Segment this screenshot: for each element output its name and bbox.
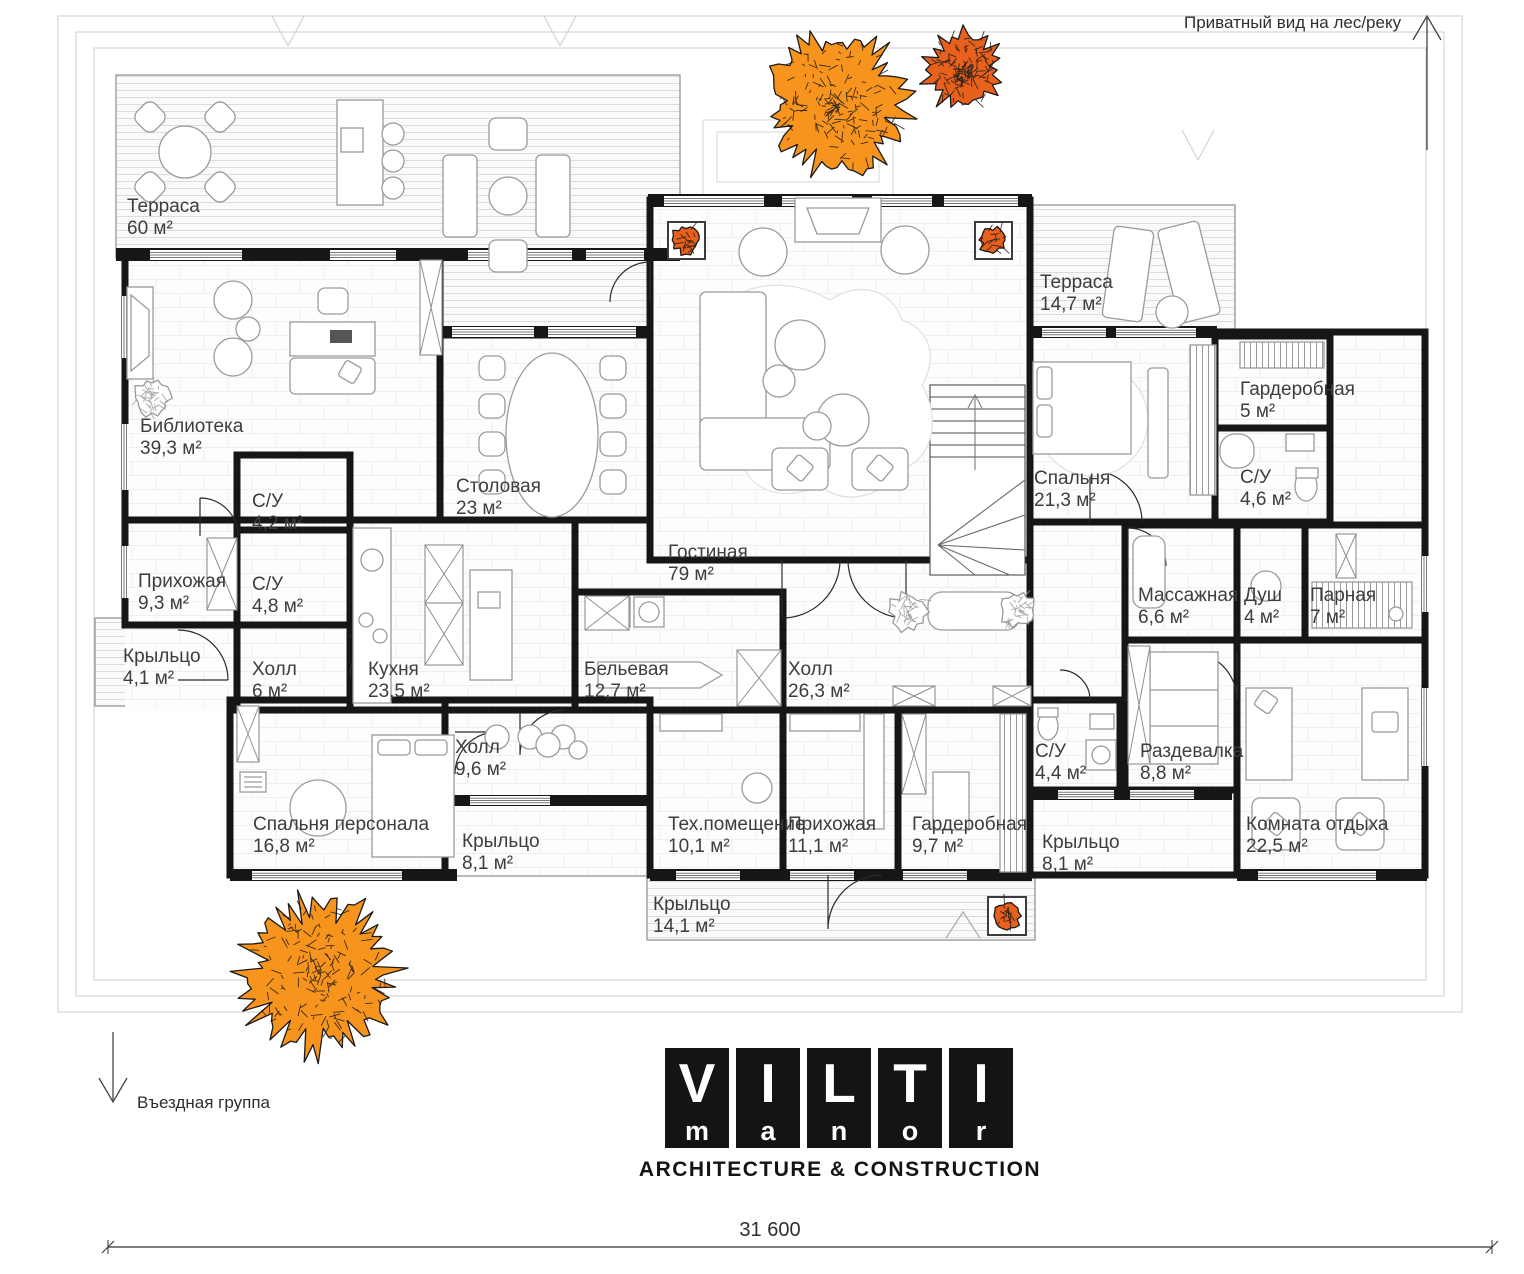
- logo-tile: I r: [949, 1048, 1013, 1148]
- svg-text:Крыльцо: Крыльцо: [1042, 832, 1120, 853]
- svg-text:4,6 м²: 4,6 м²: [1240, 489, 1291, 510]
- svg-text:8,1 м²: 8,1 м²: [462, 853, 513, 874]
- svg-text:V: V: [679, 1052, 716, 1114]
- svg-text:4,4 м²: 4,4 м²: [1035, 763, 1086, 784]
- svg-text:Спальня персонала: Спальня персонала: [253, 814, 429, 835]
- logo: V m I a L n T o I r ARCHITECTURE & CONST…: [639, 1048, 1041, 1181]
- svg-text:11,1 м²: 11,1 м²: [788, 836, 848, 857]
- svg-text:Парная: Парная: [1310, 585, 1376, 606]
- annotation-private-view: Приватный вид на лес/реку: [1184, 13, 1441, 150]
- svg-text:Кухня: Кухня: [368, 659, 419, 680]
- svg-text:7 м²: 7 м²: [1310, 607, 1345, 628]
- logo-tile: I a: [736, 1048, 800, 1148]
- svg-text:a: a: [760, 1116, 776, 1146]
- svg-text:Приватный вид на лес/реку: Приватный вид на лес/реку: [1184, 13, 1402, 32]
- svg-text:Терраса: Терраса: [127, 196, 200, 217]
- svg-text:Гардеробная: Гардеробная: [912, 814, 1027, 835]
- room-label-shower: Душ4 м²: [1244, 585, 1282, 628]
- svg-text:Крыльцо: Крыльцо: [653, 894, 731, 915]
- svg-text:4,2 м²: 4,2 м²: [252, 513, 303, 534]
- tree-icon: [770, 31, 917, 178]
- svg-text:4,1 м²: 4,1 м²: [123, 668, 174, 689]
- svg-text:6,6 м²: 6,6 м²: [1138, 607, 1189, 628]
- svg-text:Въездная группа: Въездная группа: [137, 1093, 271, 1112]
- svg-text:8,8 м²: 8,8 м²: [1140, 763, 1191, 784]
- svg-text:39,3 м²: 39,3 м²: [140, 438, 202, 459]
- svg-text:С/У: С/У: [252, 574, 284, 595]
- dimension-value: 31 600: [739, 1219, 800, 1241]
- svg-text:Холл: Холл: [788, 659, 833, 680]
- svg-text:Столовая: Столовая: [456, 476, 541, 497]
- svg-text:Тех.помещение: Тех.помещение: [668, 814, 806, 835]
- svg-text:Комната отдыха: Комната отдыха: [1246, 814, 1389, 835]
- svg-text:С/У: С/У: [1240, 467, 1272, 488]
- floor-plan-page: Терраса60 м² Библиотека39,3 м² Прихожая9…: [0, 0, 1524, 1274]
- svg-text:m: m: [685, 1116, 709, 1146]
- svg-text:Гостиная: Гостиная: [668, 542, 748, 563]
- svg-text:60 м²: 60 м²: [127, 218, 173, 239]
- svg-text:4,8 м²: 4,8 м²: [252, 596, 303, 617]
- svg-text:Библиотека: Библиотека: [140, 416, 244, 437]
- svg-text:12,7 м²: 12,7 м²: [584, 681, 646, 702]
- svg-text:Холл: Холл: [455, 737, 500, 758]
- svg-text:Душ: Душ: [1244, 585, 1282, 606]
- svg-text:С/У: С/У: [1035, 741, 1067, 762]
- room-label-hall-9-6: Холл9,6 м²: [455, 737, 506, 780]
- north-arrow-icon: [1413, 16, 1441, 150]
- svg-text:14,7 м²: 14,7 м²: [1040, 294, 1102, 315]
- svg-text:Массажная: Массажная: [1138, 585, 1238, 606]
- svg-text:Терраса: Терраса: [1040, 272, 1113, 293]
- svg-text:9,3 м²: 9,3 м²: [138, 593, 189, 614]
- svg-text:16,8 м²: 16,8 м²: [253, 836, 315, 857]
- svg-text:8,1 м²: 8,1 м²: [1042, 854, 1093, 875]
- logo-tile: V m: [665, 1048, 729, 1148]
- svg-text:T: T: [893, 1052, 927, 1114]
- svg-text:23,5 м²: 23,5 м²: [368, 681, 430, 702]
- annotation-entrance-group: Въездная группа: [99, 1032, 271, 1112]
- svg-text:Крыльцо: Крыльцо: [462, 831, 540, 852]
- svg-text:I: I: [760, 1052, 775, 1114]
- svg-text:9,6 м²: 9,6 м²: [455, 759, 506, 780]
- svg-text:4 м²: 4 м²: [1244, 607, 1279, 628]
- svg-text:22,5 м²: 22,5 м²: [1246, 836, 1308, 857]
- tree-icon: [920, 25, 1002, 107]
- logo-tagline: ARCHITECTURE & CONSTRUCTION: [639, 1158, 1041, 1181]
- svg-text:o: o: [902, 1116, 919, 1146]
- svg-text:r: r: [976, 1116, 987, 1146]
- svg-text:5 м²: 5 м²: [1240, 401, 1275, 422]
- svg-text:Гардеробная: Гардеробная: [1240, 379, 1355, 400]
- svg-text:Раздевалка: Раздевалка: [1140, 741, 1244, 762]
- entrance-arrow-icon: [99, 1032, 127, 1102]
- tree-icon: [230, 890, 408, 1064]
- svg-text:n: n: [831, 1116, 848, 1146]
- svg-text:21,3 м²: 21,3 м²: [1034, 490, 1096, 511]
- svg-text:6 м²: 6 м²: [252, 681, 287, 702]
- svg-text:Крыльцо: Крыльцо: [123, 646, 201, 667]
- svg-text:9,7 м²: 9,7 м²: [912, 836, 963, 857]
- svg-text:10,1 м²: 10,1 м²: [668, 836, 730, 857]
- svg-text:14,1 м²: 14,1 м²: [653, 916, 715, 937]
- svg-text:Бельевая: Бельевая: [584, 659, 669, 680]
- svg-text:L: L: [822, 1052, 856, 1114]
- svg-text:26,3 м²: 26,3 м²: [788, 681, 850, 702]
- svg-text:79 м²: 79 м²: [668, 564, 714, 585]
- svg-text:23 м²: 23 м²: [456, 498, 502, 519]
- logo-tile: T o: [878, 1048, 942, 1148]
- svg-text:С/У: С/У: [252, 491, 284, 512]
- svg-text:Холл: Холл: [252, 659, 297, 680]
- svg-text:Прихожая: Прихожая: [138, 571, 226, 592]
- logo-tile: L n: [807, 1048, 871, 1148]
- svg-text:I: I: [973, 1052, 988, 1114]
- svg-text:Спальня: Спальня: [1034, 468, 1110, 489]
- dimension-line: 31 600: [102, 1219, 1498, 1254]
- staircase: [930, 385, 1025, 575]
